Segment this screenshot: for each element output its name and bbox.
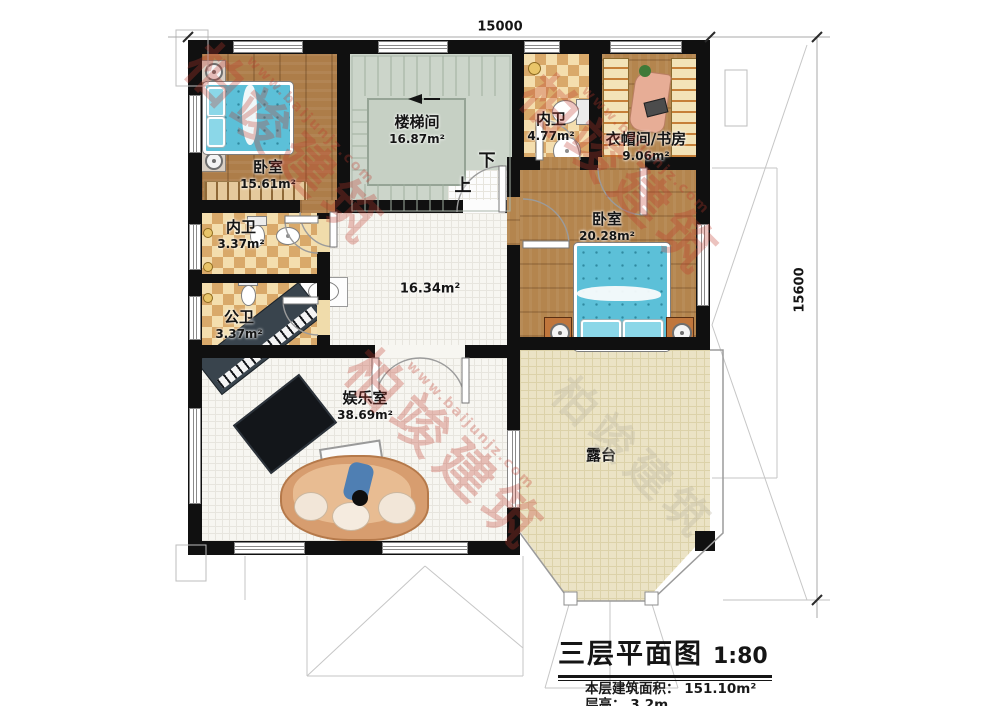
room-label-entertainment: 娱乐室 38.69m² xyxy=(337,390,393,422)
window xyxy=(697,224,709,306)
window xyxy=(189,296,201,340)
window xyxy=(610,41,682,53)
stair-down-label: 下 xyxy=(479,151,496,171)
floor-plan-canvas: 卧室 15.61m² 楼梯间 16.87m² 内卫 4.77m² 衣帽间/书房 … xyxy=(0,0,1000,706)
dimension-right: 15600 xyxy=(793,267,808,312)
roof-outline-right xyxy=(712,45,807,600)
plan-title: 三层平面图1:80 xyxy=(558,632,772,678)
room-label-cloak-study: 衣帽间/书房 9.06m² xyxy=(606,131,686,163)
room-label-bath-inner: 内卫 3.37m² xyxy=(217,219,264,251)
room-label-bath-public: 公卫 3.37m² xyxy=(215,309,262,341)
plan-scale: 1:80 xyxy=(713,644,768,669)
room-label-hall: 16.34m² xyxy=(400,281,460,296)
room-label-bath-north: 内卫 4.77m² xyxy=(527,111,574,143)
room-label-stairwell: 楼梯间 16.87m² xyxy=(389,114,445,146)
window xyxy=(507,430,520,508)
plan-title-text: 三层平面图 xyxy=(558,639,703,670)
plan-height-line: 层高： 3.2m xyxy=(585,693,668,706)
window xyxy=(378,41,448,53)
roof-outline-bottom xyxy=(245,556,523,676)
door-leaves xyxy=(283,120,647,403)
dimension-top: 15000 xyxy=(477,20,522,35)
window xyxy=(189,95,201,153)
dimension-lines xyxy=(168,32,830,618)
window xyxy=(234,542,305,554)
railing-post xyxy=(645,592,658,605)
extension-brackets xyxy=(176,30,747,581)
window xyxy=(189,224,201,270)
window xyxy=(524,41,560,53)
window xyxy=(382,542,468,554)
terrace-railing xyxy=(520,350,723,601)
window xyxy=(233,41,303,53)
room-label-bedroom-nw: 卧室 15.61m² xyxy=(240,159,296,191)
room-label-terrace: 露台 xyxy=(586,447,616,465)
railing-post xyxy=(564,592,577,605)
stair-direction-arrow xyxy=(408,94,422,104)
room-label-bedroom-east: 卧室 20.28m² xyxy=(579,211,635,243)
linework-layer xyxy=(0,0,1000,706)
window xyxy=(189,408,201,504)
stair-up-label: 上 xyxy=(455,176,472,196)
